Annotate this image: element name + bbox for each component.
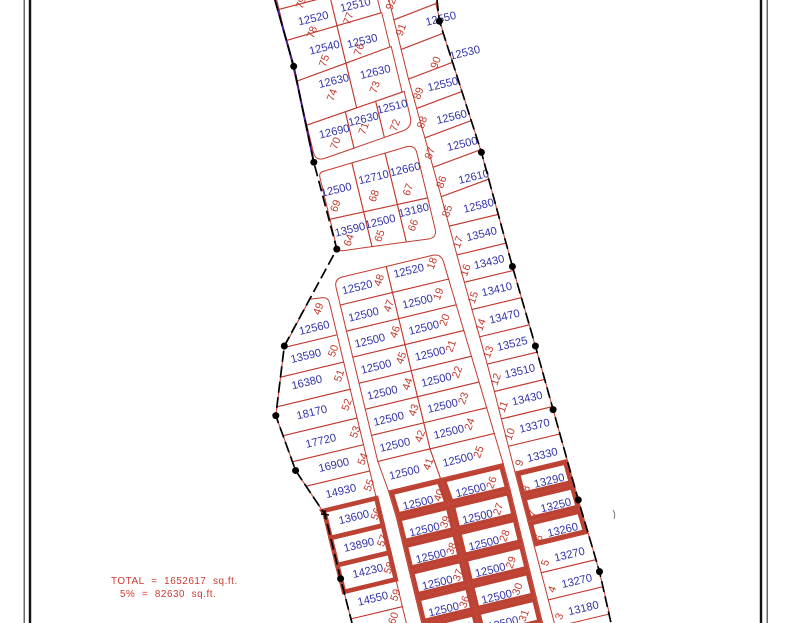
svg-text:TOTAL = 1652617 sq.ft.: TOTAL = 1652617 sq.ft. [111,576,238,587]
svg-text:5% = 82630 sq.ft.: 5% = 82630 sq.ft. [120,589,216,600]
